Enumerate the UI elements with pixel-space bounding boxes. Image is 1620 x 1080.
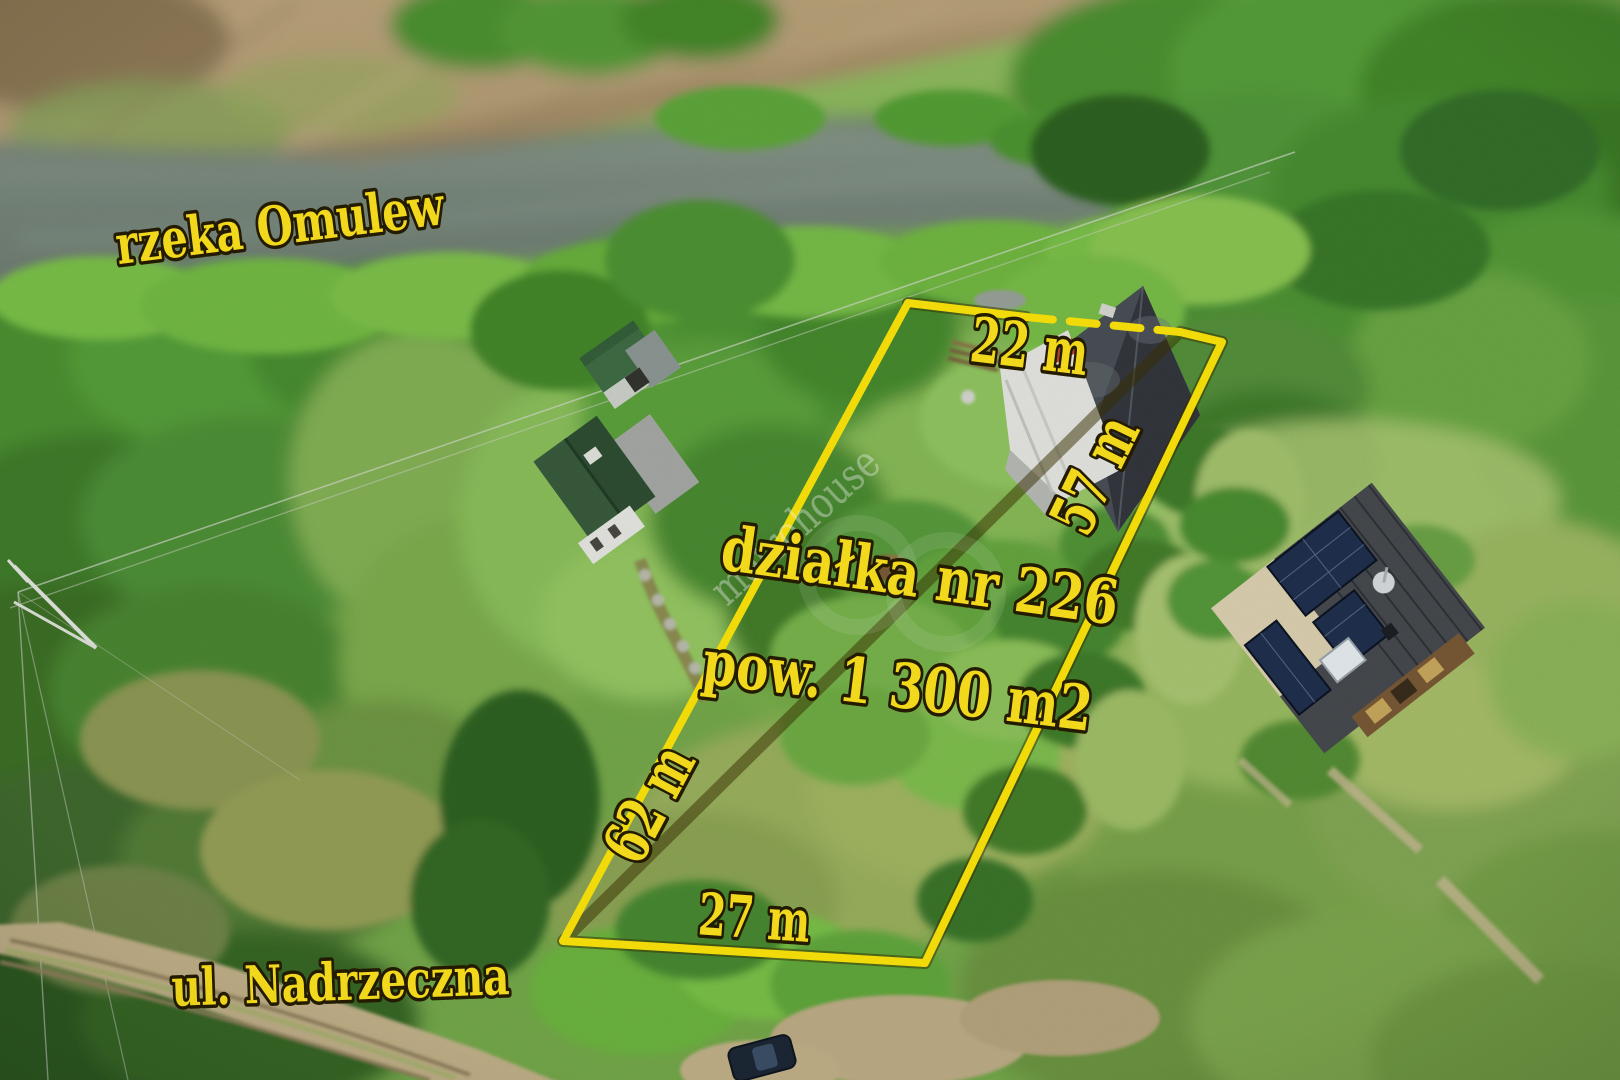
grain-overlay bbox=[0, 0, 1620, 1080]
aerial-photo: metrohouse rzeka Omulew 22 m 57 m 62 m 2… bbox=[0, 0, 1620, 1080]
